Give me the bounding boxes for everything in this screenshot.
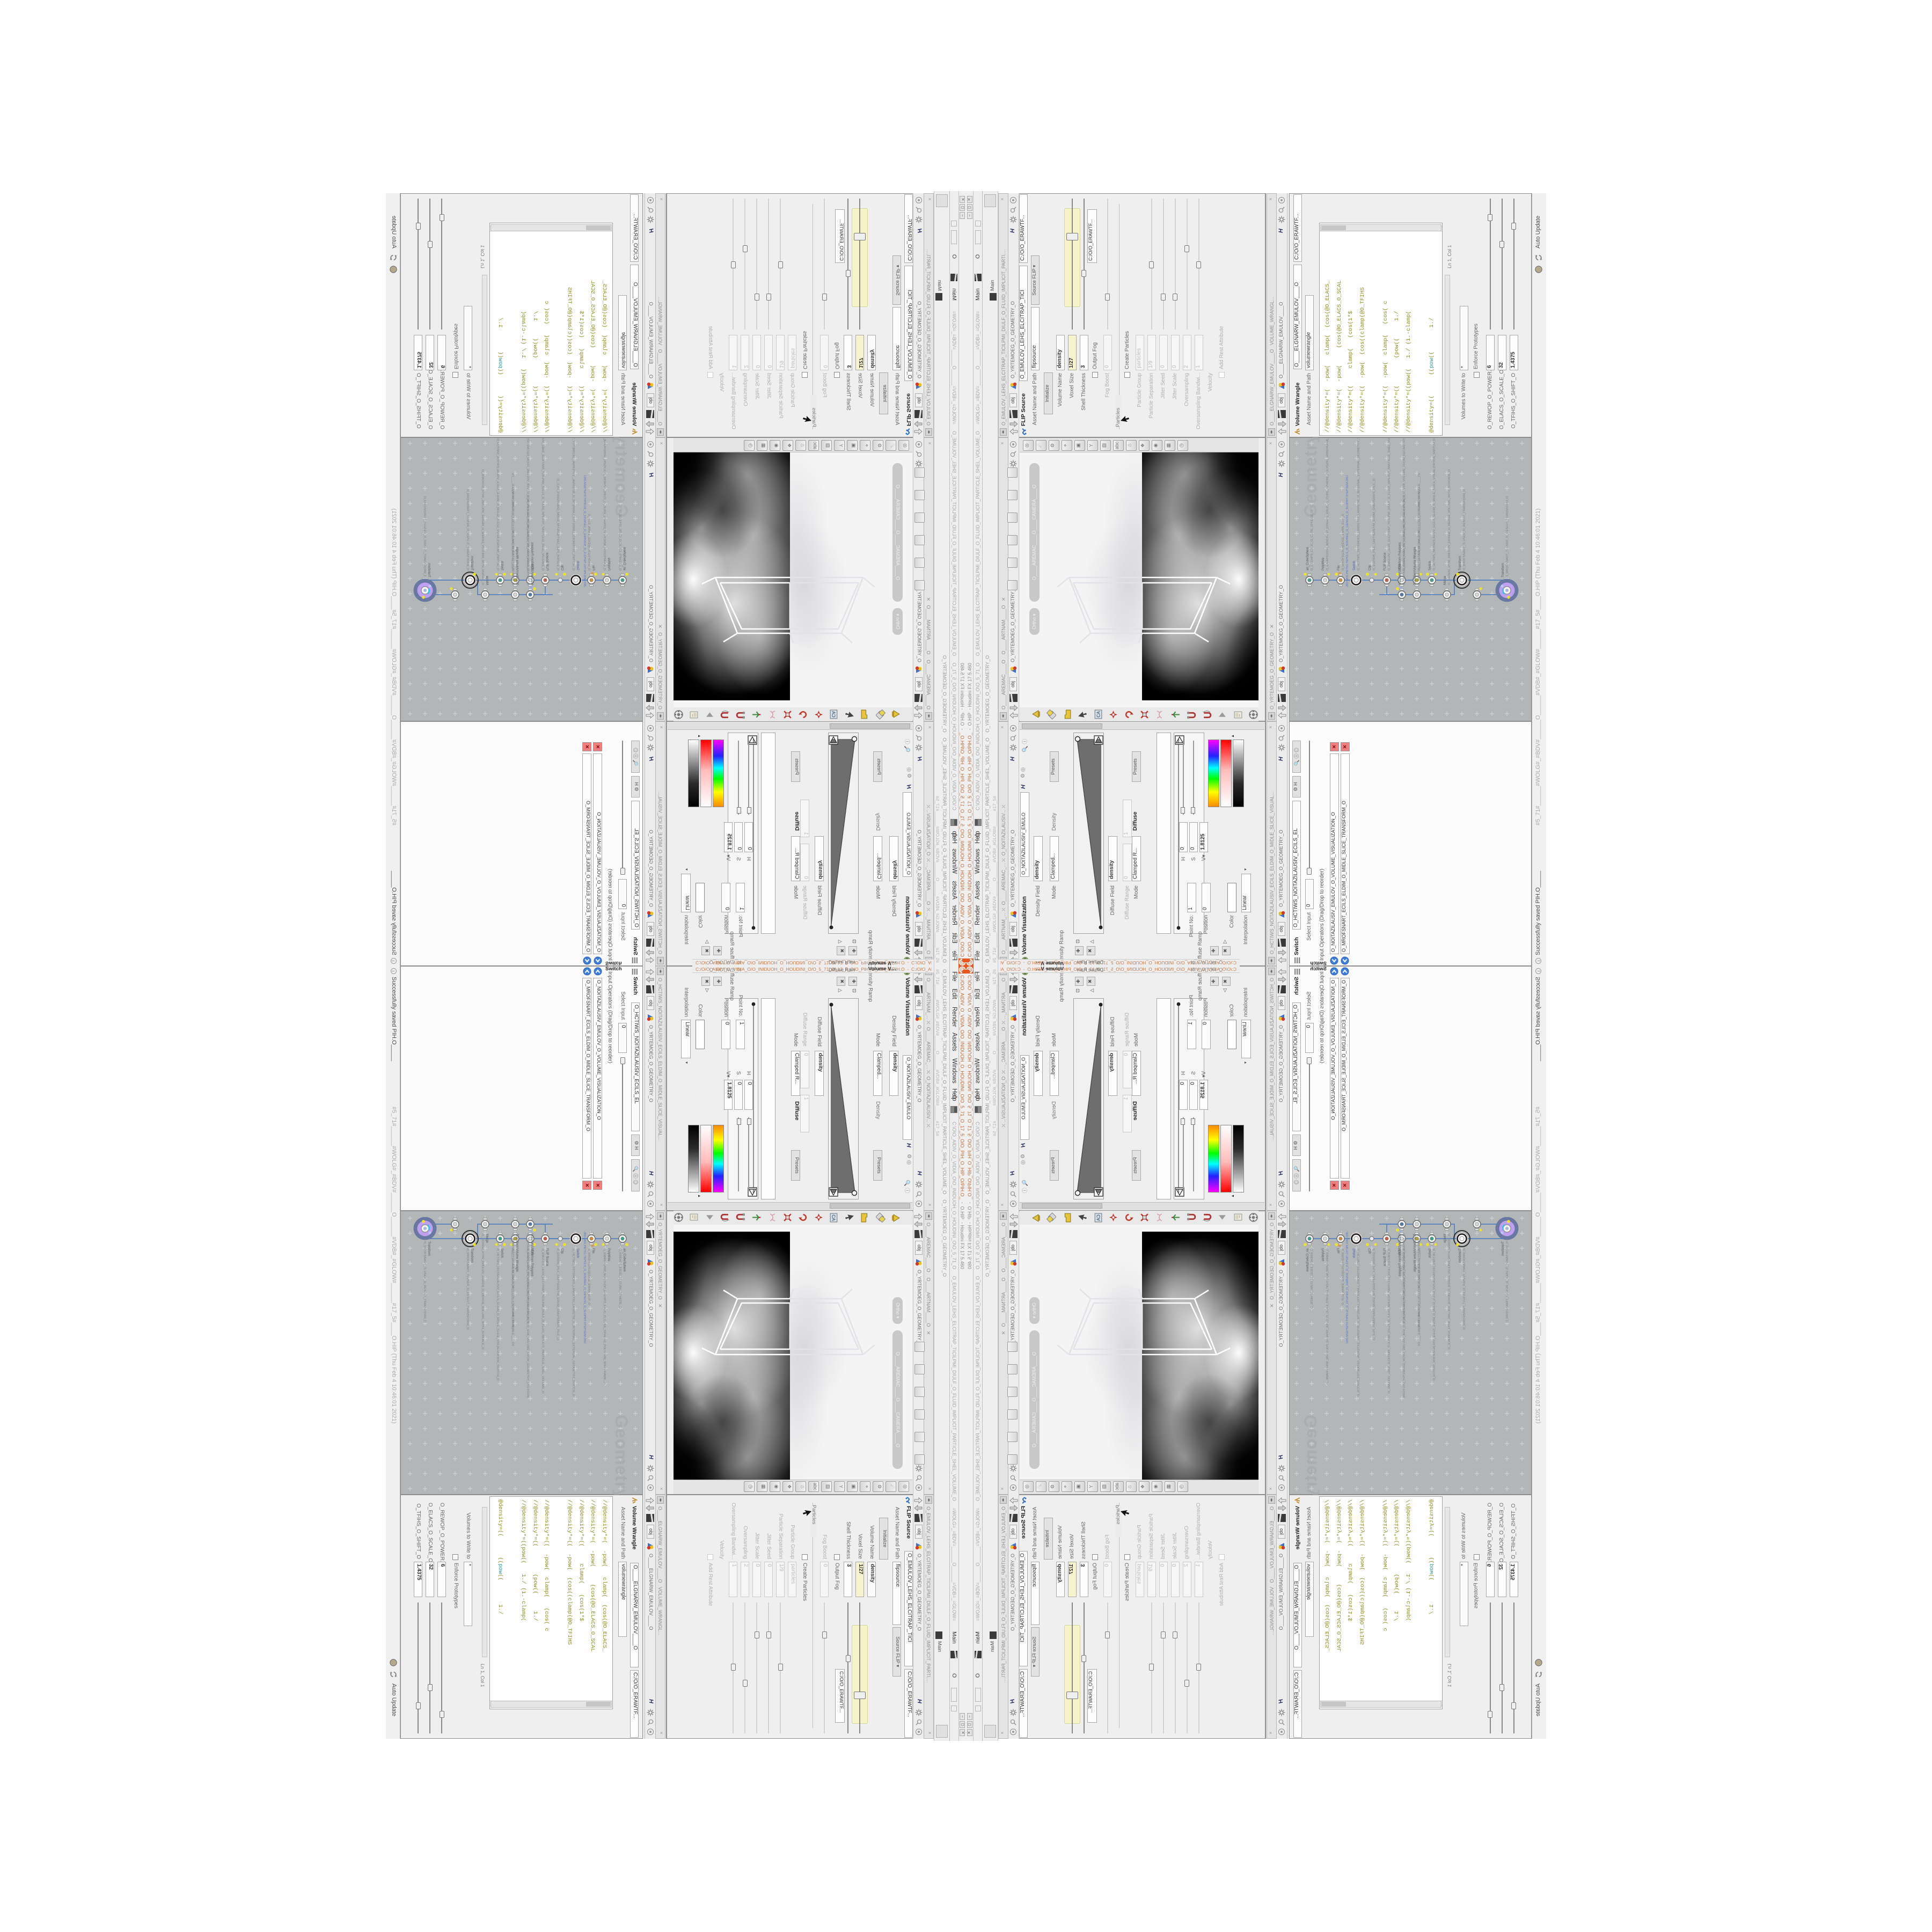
svg-text:VolumeVizSlice: VolumeVizSlice <box>530 1234 533 1256</box>
svg-text:Volume Wrangle: Volume Wrangle <box>515 1248 518 1272</box>
svg-text:O_MROFSNART_TLUSER_O_RESULT_TR: O_MROFSNART_TLUSER_O_RESULT_TRANSFORM_O <box>1463 489 1466 570</box>
svg-text:Volume Wrangle: Volume Wrangle <box>1414 1248 1417 1272</box>
svg-text:O_NOITAZILAUSIV_EMULOV_O_VOLUM: O_NOITAZILAUSIV_EMULOV_O_VOLUME_VISUALIZ… <box>1403 495 1406 585</box>
svg-text:JRD.M31.PETS1.TEPCLS_O_SOUREG_: JRD.M31.PETS1.TEPCLS_O_SOUREG_O_GENUS3_O… <box>1346 1232 1349 1343</box>
svg-text:O_EMARFERIW_NOGYLOP_EREHPS_EBU: O_EMARFERIW_NOGYLOP_EREHPS_EBUC_O_CUBE_S… <box>1326 1248 1329 1385</box>
svg-text:O_EMULOV_LEHS_ELCITRAP_TICILPM: O_EMULOV_LEHS_ELCITRAP_TICILPMI_DIULF_O_… <box>1388 437 1391 570</box>
svg-text:JRD.M31.PETS1.TEPCLS_O_SOUREG_: JRD.M31.PETS1.TEPCLS_O_SOUREG_O_GENUS3_O… <box>583 1232 586 1343</box>
svg-text:Clip: Clip <box>1368 1248 1372 1254</box>
svg-text:Transform: Transform <box>1414 570 1417 585</box>
svg-text:O_HCTIWS_YRTEMOEG_LANRETXE_LAN: O_HCTIWS_YRTEMOEG_LANRETXE_LANRETNI_O_IN… <box>572 1248 575 1397</box>
svg-text:O_MROFSNART_TLUSER_O_RESULT_TR: O_MROFSNART_TLUSER_O_RESULT_TRANSFORM_O <box>423 496 426 577</box>
svg-text:O_MROFSNART_ECILS_ELDIM_O_MIDL: O_MROFSNART_ECILS_ELDIM_O_MIDLE_SLICE_TR… <box>1418 487 1421 585</box>
svg-text:File: File <box>591 565 595 570</box>
svg-text:Transform: Transform <box>1459 1248 1462 1263</box>
svg-text:Switch: Switch <box>500 1248 503 1258</box>
svg-text:O_EGREM_HTIW_EMULOV_EGREM_O_ME: O_EGREM_HTIW_EMULOV_EGREM_O_MERGE_VOLUME… <box>481 469 484 585</box>
svg-text:O_MROFSNART_ECILS_ELDIM_O_MIDL: O_MROFSNART_ECILS_ELDIM_O_MIDLE_SLICE_TR… <box>511 487 514 585</box>
svg-text:Transform: Transform <box>1502 1241 1505 1256</box>
svg-text:O_HCTIWS_YRTEMOEG_LANRETXE_LAN: O_HCTIWS_YRTEMOEG_LANRETXE_LANRETNI_O_IN… <box>1357 1248 1360 1397</box>
svg-text:PolyWire: PolyWire <box>607 1248 610 1262</box>
svg-text:FLIP Source: FLIP Source <box>545 552 548 570</box>
svg-text:Transform: Transform <box>1414 1234 1417 1248</box>
svg-text:CA: CA <box>831 711 836 718</box>
svg-text:Switch: Switch <box>1353 561 1356 570</box>
svg-text:VolumeVizSlice: VolumeVizSlice <box>1399 1234 1402 1256</box>
svg-text:JRD.M31.PETS1.TEPCLS_O_SOUREG_: JRD.M31.PETS1.TEPCLS_O_SOUREG_O_GENUS3_O… <box>1346 475 1349 587</box>
svg-text:FLIP Source: FLIP Source <box>1384 552 1387 570</box>
svg-text:JRD.M31.PETS1.TEPCLS_O_SOUREG_: JRD.M31.PETS1.TEPCLS_O_SOUREG_O_GENUS3_O… <box>583 475 586 587</box>
svg-text:Transform: Transform <box>1459 556 1462 570</box>
svg-text:FLIP Source: FLIP Source <box>1384 1248 1387 1267</box>
svg-text:CA: CA <box>831 1214 836 1221</box>
svg-text:O_MROFS(LRU@)DGE_EMAN_ELIF_O: O_MROFS(LRU@)DGE_EMAN_ELIF_O <box>587 1248 590 1305</box>
svg-text:O_MROFSNART_TLUSER_O_RESULT_TR: O_MROFSNART_TLUSER_O_RESULT_TRANSFORM_O <box>1506 496 1509 577</box>
svg-text:O_MROFS(LRU@)DGE_EMAN_ELIF_O: O_MROFS(LRU@)DGE_EMAN_ELIF_O <box>1342 1248 1345 1305</box>
svg-text:Transform: Transform <box>427 563 430 577</box>
svg-text:Volume Wrangle: Volume Wrangle <box>515 546 518 570</box>
svg-text:Switch: Switch <box>1353 1248 1356 1258</box>
svg-text:CA: CA <box>1096 1214 1101 1221</box>
svg-text:O_EREHPS_EBUC_O_CUBE_SPHERE_O: O_EREHPS_EBUC_O_CUBE_SPHERE_O <box>1311 1248 1314 1309</box>
svg-text:Clip: Clip <box>1368 565 1372 570</box>
svg-text:PolyWire: PolyWire <box>1322 557 1325 570</box>
svg-text:O_HCTIWS_NOITAZILAUSIV_ECILS_E: O_HCTIWS_NOITAZILAUSIV_ECILS_ELDIM_O_MID… <box>496 438 499 570</box>
svg-text:O_MROFSNART_TLUSER_O_RESULT_TR: O_MROFSNART_TLUSER_O_RESULT_TRANSFORM_O <box>466 1248 469 1330</box>
svg-text:Merge: Merge <box>485 1234 488 1243</box>
svg-text:O_EMARFERIW_NOGYLOP_EREHPS_EBU: O_EMARFERIW_NOGYLOP_EREHPS_EBUC_O_CUBE_S… <box>1326 437 1329 570</box>
svg-text:O_HCTIWS_YRTEMOEG_LANRETXE_LAN: O_HCTIWS_YRTEMOEG_LANRETXE_LANRETNI_O_IN… <box>572 437 575 570</box>
svg-text:O_EGREM_HTIW_EMULOV_EGREM_O_ME: O_EGREM_HTIW_EMULOV_EGREM_O_MERGE_VOLUME… <box>1448 1234 1451 1350</box>
svg-text:CA: CA <box>1096 711 1101 718</box>
svg-text:PolyWire: PolyWire <box>1322 1248 1325 1262</box>
svg-text:O_MROFSNART_TLUSER_O_RESULT_TR: O_MROFSNART_TLUSER_O_RESULT_TRANSFORM_O <box>423 1241 426 1323</box>
svg-text:File: File <box>591 1248 595 1254</box>
svg-text:O_MROFSNART_TLUSER_O_RESULT_TR: O_MROFSNART_TLUSER_O_RESULT_TRANSFORM_O <box>1506 1241 1509 1323</box>
svg-text:O_EGREM_HTIW_EMULOV_EGREM_O_ME: O_EGREM_HTIW_EMULOV_EGREM_O_MERGE_VOLUME… <box>1448 469 1451 585</box>
svg-text:O_MROFSNART_ECILS_ELDIM_O_MIDL: O_MROFSNART_ECILS_ELDIM_O_MIDLE_SLICE_TR… <box>1418 1234 1421 1331</box>
svg-text:O_EMARFERIW_NOGYLOP_EREHPS_EBU: O_EMARFERIW_NOGYLOP_EREHPS_EBUC_O_CUBE_S… <box>603 1248 606 1385</box>
svg-text:Switch: Switch <box>1429 1248 1432 1258</box>
svg-text:Transform: Transform <box>515 570 518 585</box>
svg-text:O_EGDIRB_PILC_GNITSERETNI_EROM: O_EGDIRB_PILC_GNITSERETNI_EROM_GNIHTEMOS… <box>556 1248 559 1341</box>
svg-text:Volume Wrangle: Volume Wrangle <box>1414 546 1417 570</box>
svg-text:an_CubeSphere: an_CubeSphere <box>1306 1248 1309 1272</box>
svg-text:VolumeVizSlice: VolumeVizSlice <box>1399 562 1402 585</box>
svg-text:O_EREHPS_EBUC_O_CUBE_SPHERE_O: O_EREHPS_EBUC_O_CUBE_SPHERE_O <box>1311 510 1314 570</box>
svg-text:Transform: Transform <box>470 556 473 570</box>
svg-text:Switch: Switch <box>576 1248 579 1258</box>
svg-text:O_HCTIWS_YRTEMOEG_LANRETXE_LAN: O_HCTIWS_YRTEMOEG_LANRETXE_LANRETNI_O_IN… <box>1357 437 1360 570</box>
svg-text:Clip: Clip <box>560 565 563 570</box>
svg-text:O_HCTIWS_NOITAZILAUSIV_ECILS_E: O_HCTIWS_NOITAZILAUSIV_ECILS_ELDIM_O_MID… <box>1433 1248 1436 1381</box>
svg-text:O_MROFS(LRU@)DGE_EMAN_ELIF_O: O_MROFS(LRU@)DGE_EMAN_ELIF_O <box>587 514 590 570</box>
svg-text:Transform: Transform <box>515 1234 518 1248</box>
svg-text:O_EMARFERIW_NOGYLOP_EREHPS_EBU: O_EMARFERIW_NOGYLOP_EREHPS_EBUC_O_CUBE_S… <box>603 437 606 570</box>
svg-text:FLIP Source: FLIP Source <box>545 1248 548 1267</box>
svg-text:an_CubeSphere: an_CubeSphere <box>623 1248 626 1272</box>
svg-text:Merge: Merge <box>1444 575 1447 585</box>
svg-text:PolyWire: PolyWire <box>607 557 610 570</box>
svg-text:O_MROFSNART_TLUSER_O_RESULT_TR: O_MROFSNART_TLUSER_O_RESULT_TRANSFORM_O <box>1463 1248 1466 1330</box>
svg-text:O_EGREM_HTIW_EMULOV_EGREM_O_ME: O_EGREM_HTIW_EMULOV_EGREM_O_MERGE_VOLUME… <box>481 1234 484 1350</box>
svg-text:O_EMULOV_LEHS_ELCITRAP_TICILPM: O_EMULOV_LEHS_ELCITRAP_TICILPMI_DIULF_O_… <box>541 1248 544 1394</box>
svg-text:O_EGDIRB_PILC_GNITSERETNI_EROM: O_EGDIRB_PILC_GNITSERETNI_EROM_GNIHTEMOS… <box>556 478 559 570</box>
svg-text:File: File <box>1337 565 1341 570</box>
svg-text:O_NOITAZILAUSIV_EMULOV_O_VOLUM: O_NOITAZILAUSIV_EMULOV_O_VOLUME_VISUALIZ… <box>526 495 529 585</box>
svg-text:File: File <box>1337 1248 1341 1254</box>
svg-text:an_CubeSphere: an_CubeSphere <box>623 547 626 570</box>
svg-text:O_NOITAZILAUSIV_EMULOV_O_VOLUM: O_NOITAZILAUSIV_EMULOV_O_VOLUME_VISUALIZ… <box>1403 1234 1406 1324</box>
svg-text:Transform: Transform <box>1502 563 1505 577</box>
svg-text:Switch: Switch <box>576 561 579 570</box>
svg-text:O_EMULOV_LEHS_ELCITRAP_TICILPM: O_EMULOV_LEHS_ELCITRAP_TICILPMI_DIULF_O_… <box>1388 1248 1391 1394</box>
svg-text:O_MROFS(LRU@)DGE_EMAN_ELIF_O: O_MROFS(LRU@)DGE_EMAN_ELIF_O <box>1342 514 1345 570</box>
svg-text:Transform: Transform <box>427 1241 430 1256</box>
svg-text:Transform: Transform <box>470 1248 473 1263</box>
svg-text:Merge: Merge <box>485 575 488 585</box>
svg-text:O_HCTIWS_NOITAZILAUSIV_ECILS_E: O_HCTIWS_NOITAZILAUSIV_ECILS_ELDIM_O_MID… <box>1433 438 1436 570</box>
svg-text:O_HCTIWS_NOITAZILAUSIV_ECILS_E: O_HCTIWS_NOITAZILAUSIV_ECILS_ELDIM_O_MID… <box>496 1248 499 1381</box>
svg-text:VolumeVizSlice: VolumeVizSlice <box>530 562 533 585</box>
svg-text:Switch: Switch <box>500 561 503 570</box>
svg-text:O_EGDIRB_PILC_GNITSERETNI_EROM: O_EGDIRB_PILC_GNITSERETNI_EROM_GNIHTEMOS… <box>1373 478 1376 570</box>
svg-text:O_MROFSNART_TLUSER_O_RESULT_TR: O_MROFSNART_TLUSER_O_RESULT_TRANSFORM_O <box>466 489 469 570</box>
svg-text:O_EMULOV_LEHS_ELCITRAP_TICILPM: O_EMULOV_LEHS_ELCITRAP_TICILPMI_DIULF_O_… <box>541 437 544 570</box>
svg-text:O_EREHPS_EBUC_O_CUBE_SPHERE_O: O_EREHPS_EBUC_O_CUBE_SPHERE_O <box>618 1248 621 1309</box>
svg-text:Merge: Merge <box>1444 1234 1447 1243</box>
svg-text:an_CubeSphere: an_CubeSphere <box>1306 547 1309 570</box>
svg-text:Switch: Switch <box>1429 561 1432 570</box>
svg-text:O_EREHPS_EBUC_O_CUBE_SPHERE_O: O_EREHPS_EBUC_O_CUBE_SPHERE_O <box>618 510 621 570</box>
svg-text:Clip: Clip <box>560 1248 563 1254</box>
svg-text:O_EGDIRB_PILC_GNITSERETNI_EROM: O_EGDIRB_PILC_GNITSERETNI_EROM_GNIHTEMOS… <box>1373 1248 1376 1341</box>
svg-text:O_MROFSNART_ECILS_ELDIM_O_MIDL: O_MROFSNART_ECILS_ELDIM_O_MIDLE_SLICE_TR… <box>511 1234 514 1331</box>
svg-text:O_NOITAZILAUSIV_EMULOV_O_VOLUM: O_NOITAZILAUSIV_EMULOV_O_VOLUME_VISUALIZ… <box>526 1234 529 1324</box>
